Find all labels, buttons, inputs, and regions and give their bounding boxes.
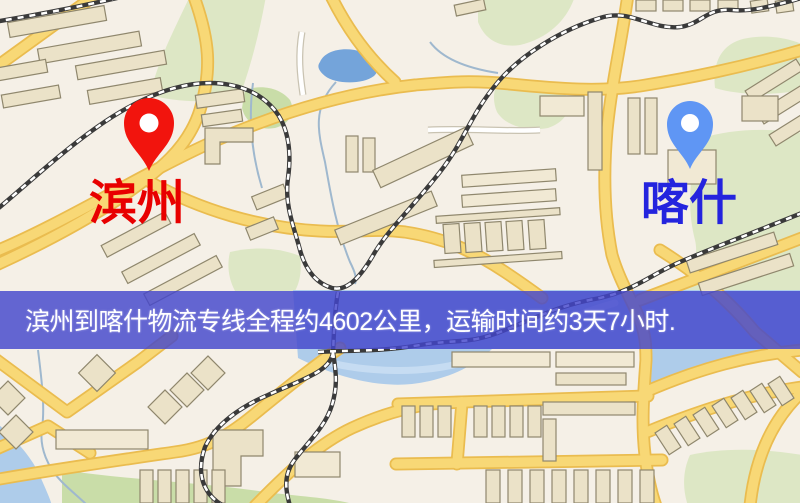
origin-pin-hole bbox=[140, 114, 159, 133]
city-map-image: 滨州 喀什 bbox=[0, 0, 800, 503]
origin-label: 滨州 bbox=[89, 177, 185, 230]
destination-pin-hole bbox=[681, 114, 699, 132]
route-info-banner: 滨州到喀什物流专线全程约4602公里，运输时间约3天7小时. bbox=[0, 291, 800, 349]
route-description: 滨州到喀什物流专线全程约4602公里，运输时间约3天7小时. bbox=[25, 302, 675, 338]
map-canvas: 滨州 喀什 滨州到喀什物流专线全程约4602公里，运输时间约3天7小时. bbox=[0, 0, 800, 503]
destination-label: 喀什 bbox=[641, 177, 737, 230]
